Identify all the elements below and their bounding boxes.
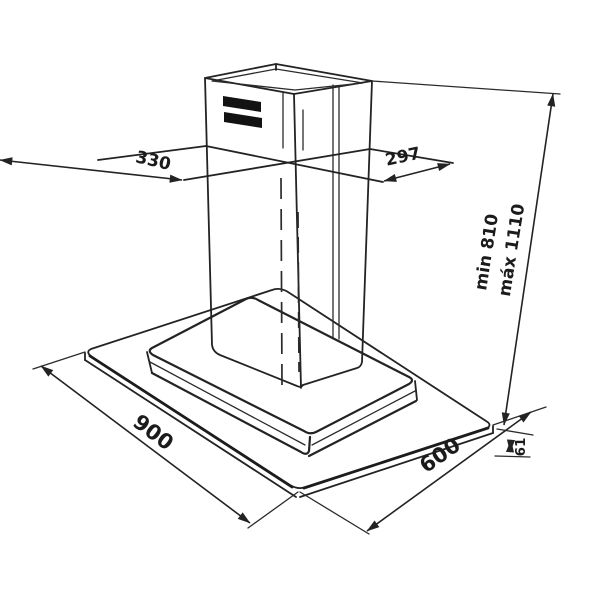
ceiling-plane: 330 297 (0, 144, 453, 182)
dim-label-297: 297 (384, 144, 423, 171)
telescopic-dashed-line (281, 178, 282, 386)
chimney-duct (205, 64, 372, 388)
dim-600: 600 (300, 407, 546, 534)
dim-297: 297 (384, 144, 450, 181)
dim-label-600: 600 (415, 433, 465, 478)
dim-label-61: 61 (513, 438, 529, 457)
hood-dimension-drawing: 330 297 min 810 máx 1110 900 600 61 (0, 0, 600, 600)
dimension-diagram-svg: 330 297 min 810 máx 1110 900 600 61 (0, 0, 600, 600)
dim-330: 330 (0, 147, 182, 180)
control-vent-panel (223, 96, 262, 128)
dim-900: 900 (33, 352, 298, 528)
